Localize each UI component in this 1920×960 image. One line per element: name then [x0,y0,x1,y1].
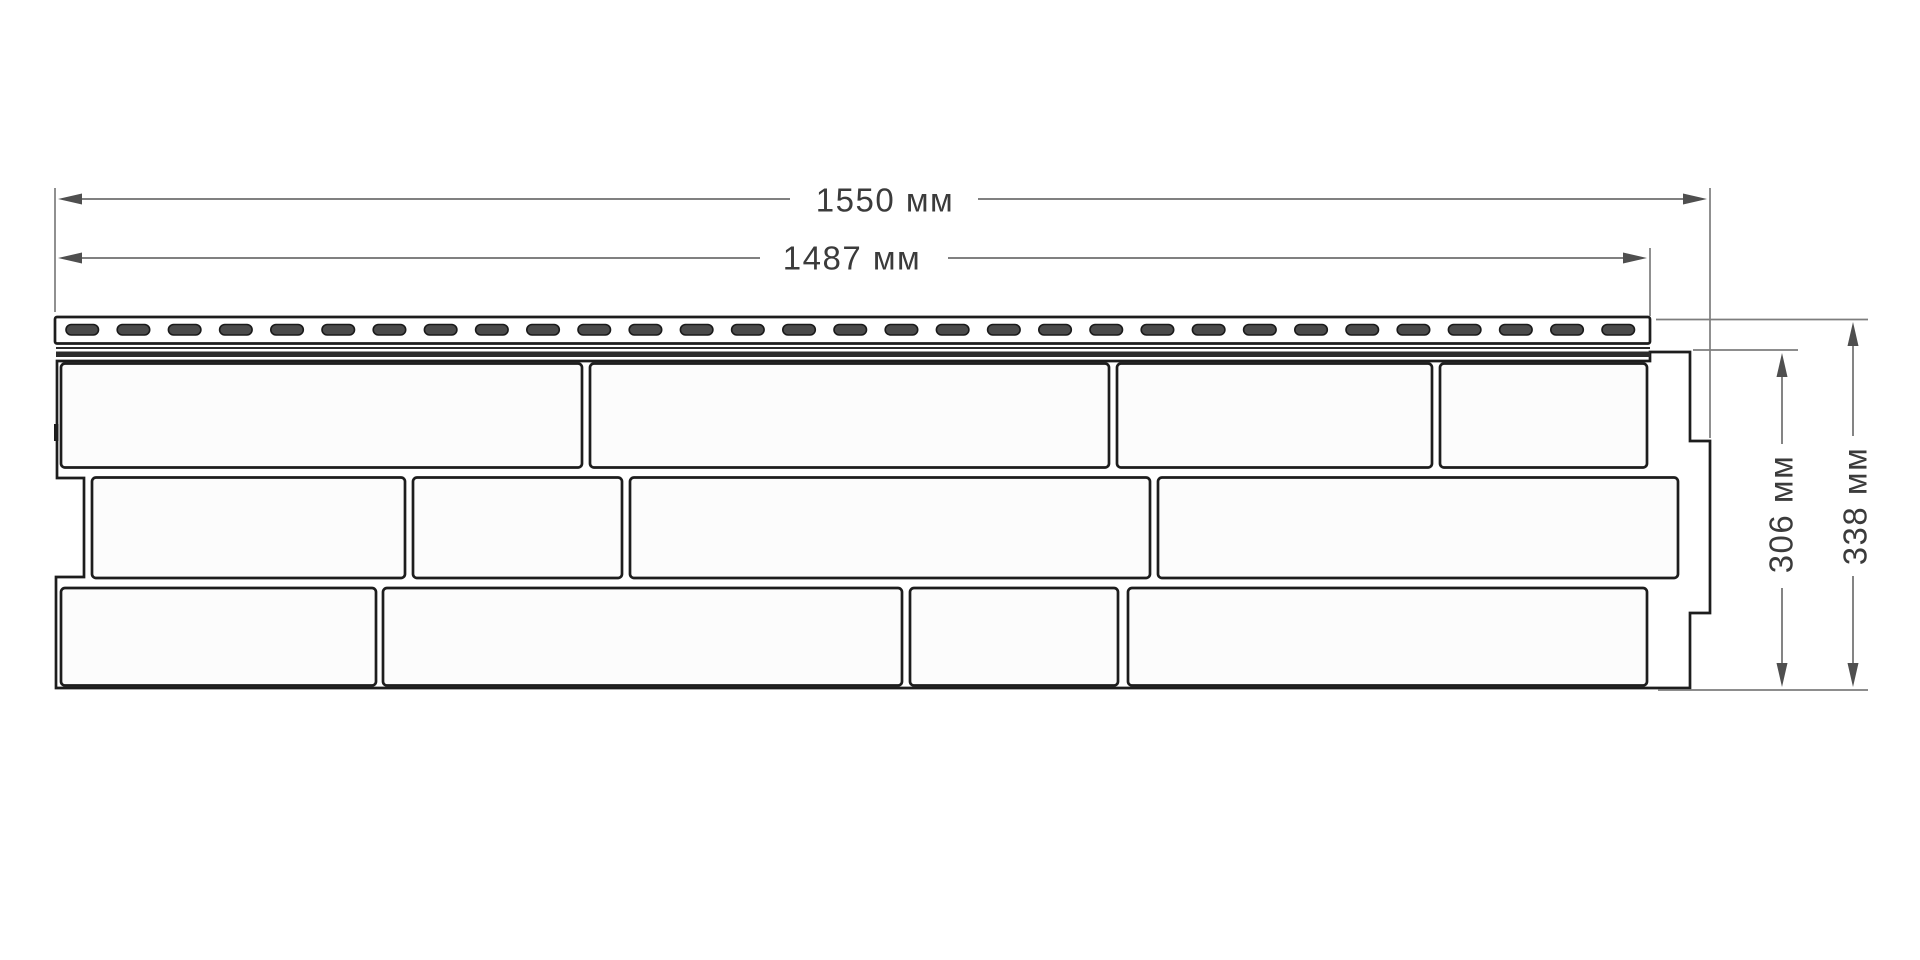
perforation-slot [66,325,99,336]
brick [1440,364,1647,468]
drawing-canvas: 1550 мм 1487 мм 306 мм 338 мм [0,0,1920,960]
brick [1117,364,1432,468]
dimension-arrow [58,194,82,205]
perforation-slot [1295,325,1328,336]
perforation-slot [373,325,406,336]
brick [590,364,1109,468]
brick [383,588,902,686]
perforation-slot [1602,325,1635,336]
dimension-arrow [1848,322,1859,346]
dimension-arrow [1777,353,1788,377]
brick [1158,478,1678,579]
dimension-label-useful-width: 1487 мм [779,242,925,275]
brick [61,588,376,686]
perforation-slot [424,325,457,336]
perforation-slot [783,325,816,336]
perforation-slot [885,325,918,336]
siding-panel-diagram [0,0,1920,960]
perforation-slot [1551,325,1584,336]
perforation-slot [527,325,560,336]
perforation-slot [220,325,253,336]
dimension-label-total-width: 1550 мм [812,184,958,217]
perforation-slot [936,325,969,336]
perforation-slot [1397,325,1430,336]
left-lock-mark [54,424,59,441]
brick [910,588,1118,686]
perforation-slot [680,325,713,336]
perforation-slot [1346,325,1379,336]
brick [61,364,582,468]
perforation-slot [1500,325,1533,336]
dimension-label-useful-height: 306 мм [1765,451,1798,578]
brick [1128,588,1647,686]
dimension-arrow [58,253,82,264]
perforation-slot [1448,325,1481,336]
perforation-slot [988,325,1021,336]
perforation-slot [168,325,201,336]
perforation-slot [834,325,867,336]
perforation-slot [1090,325,1123,336]
perforation-slot [1244,325,1277,336]
technical-drawing-page: { "diagram": { "type": "technical-drawin… [0,0,1920,960]
dimension-arrow [1623,253,1647,264]
dimension-label-total-height: 338 мм [1839,443,1872,570]
dimension-arrow [1848,663,1859,687]
perforation-slot [578,325,611,336]
perforation-slot [1141,325,1174,336]
dimension-arrow [1683,194,1707,205]
dimension-arrow [1777,663,1788,687]
perforation-slot [629,325,662,336]
perforation-slot [1039,325,1072,336]
hem-shadow-band [56,352,1650,358]
perforation-slot [1192,325,1225,336]
perforation-slot [732,325,765,336]
brick [630,478,1150,579]
perforation-slot [271,325,304,336]
brick [92,478,405,579]
perforation-slot [322,325,355,336]
perforation-slot [117,325,150,336]
brick [413,478,622,579]
perforation-slot [476,325,509,336]
